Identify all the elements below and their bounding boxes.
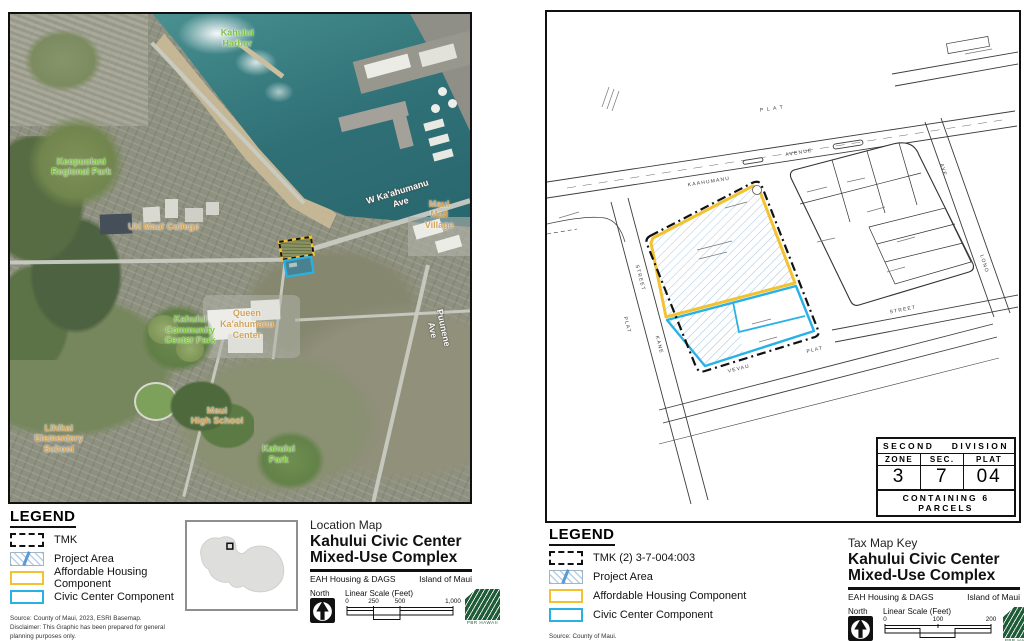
map-label: Lihikai Elementary School	[34, 423, 83, 455]
legend-item: Affordable Housing Component	[549, 588, 839, 603]
project-title: Kahului Civic Center Mixed-Use Complex	[848, 552, 1020, 584]
left-scale-bar: Linear Scale (Feet) 02505001,000	[345, 589, 455, 622]
division-col-value: 7	[921, 466, 964, 489]
north-arrow-icon	[848, 616, 873, 641]
legend-title: LEGEND	[549, 526, 615, 546]
legend-swatch-tmk	[10, 533, 44, 547]
legend-item-label: Project Area	[593, 571, 653, 583]
firm-logo: PBR HAWAII	[1003, 607, 1024, 641]
map-label: Kahului Park	[262, 444, 295, 465]
maui-island-silhouette	[187, 522, 296, 609]
map-label: Maui Mall Village	[424, 199, 455, 231]
map-label: UH Maui College	[128, 222, 199, 233]
title-rule	[848, 587, 1020, 590]
legend-swatch-affordable	[549, 589, 583, 603]
pbr-hawaii-logo-icon	[1003, 607, 1024, 638]
legend-item: Project Area	[10, 551, 190, 566]
north-arrow-icon	[310, 598, 335, 623]
island-inset-map	[185, 520, 298, 611]
legend-item-label: TMK (2) 3-7-004:003	[593, 552, 695, 564]
scale-bar-graphic	[345, 606, 455, 620]
firm-logo: PBR HAWAII	[465, 589, 500, 625]
division-title: SECOND DIVISION	[878, 439, 1014, 454]
legend-item-label: Civic Center Component	[593, 609, 713, 621]
scale-bar-graphic	[883, 624, 993, 638]
north-indicator: North	[310, 589, 335, 625]
legend-swatch-project	[549, 570, 583, 584]
island-label: Island of Maui	[419, 574, 472, 584]
legend-item-label: Civic Center Component	[54, 591, 174, 603]
client-label: EAH Housing & DAGS	[310, 574, 396, 584]
map-type-label: Location Map	[310, 518, 472, 532]
map-label: Queen Ka'ahumanu Center	[220, 308, 274, 340]
scale-tick: 100	[933, 616, 944, 623]
legend-swatch-project	[10, 552, 44, 566]
scale-tick: 0	[345, 598, 349, 605]
legend-swatch-affordable	[10, 571, 44, 585]
right-legend: LEGEND TMK (2) 3-7-004:003Project AreaAf…	[549, 526, 839, 641]
map-label: Keopuolani Regional Park	[51, 156, 111, 177]
division-col-header: ZONE	[878, 454, 921, 466]
island-label: Island of Maui	[967, 592, 1020, 602]
map-type-label: Tax Map Key	[848, 536, 1020, 550]
planning-exhibit-page: Kahului HarborKeopuolani Regional ParkUH…	[0, 0, 1024, 641]
college-buildings	[134, 192, 226, 241]
source-note: Source: County of Maui, 2023, ESRI Basem…	[10, 614, 190, 623]
legend-item: Project Area	[549, 569, 839, 584]
client-label: EAH Housing & DAGS	[848, 592, 934, 602]
legend-swatch-civic	[549, 608, 583, 622]
division-col-header: SEC.	[921, 454, 964, 466]
right-source-disclaimer: Source: County of Maui. Disclaimer: This…	[549, 632, 839, 641]
division-headers: ZONESEC.PLAT	[878, 454, 1014, 466]
legend-item: Affordable Housing Component	[10, 570, 190, 585]
project-title: Kahului Civic Center Mixed-Use Complex	[310, 534, 472, 566]
legend-item-label: TMK	[54, 534, 77, 546]
tax-map: P L A TKAAHUMANUAVENUESTREETPLATKANEAVEL…	[545, 10, 1021, 523]
park-fields	[24, 29, 102, 92]
satellite-location-map: Kahului HarborKeopuolani Regional ParkUH…	[8, 12, 472, 504]
division-col-value: 3	[878, 466, 921, 489]
north-indicator: North	[848, 607, 873, 641]
map-label: Kahului Harbor	[221, 27, 254, 48]
legend-item: TMK	[10, 532, 190, 547]
right-title-block: Tax Map Key Kahului Civic Center Mixed-U…	[848, 536, 1020, 641]
division-values: 3704	[878, 466, 1014, 489]
fuel-tank	[438, 87, 447, 96]
scale-tick: 1,000	[445, 598, 461, 605]
left-title-block: Location Map Kahului Civic Center Mixed-…	[310, 518, 472, 625]
source-note: Source: County of Maui.	[549, 632, 839, 641]
scale-tick: 500	[395, 598, 406, 605]
division-col-header: PLAT	[964, 454, 1014, 466]
scale-tick: 250	[368, 598, 379, 605]
map-label: Puunene Ave	[424, 308, 453, 350]
legend-item-label: Affordable Housing Component	[54, 566, 190, 590]
left-source-disclaimer: Source: County of Maui, 2023, ESRI Basem…	[10, 614, 190, 641]
map-label: Kahului Community Center Park	[165, 314, 216, 346]
legend-item-label: Affordable Housing Component	[593, 590, 746, 602]
project-area-marker	[277, 234, 321, 281]
legend-item: TMK (2) 3-7-004:003	[549, 550, 839, 565]
scale-tick-labels: 0100200	[883, 616, 993, 624]
surf-foam	[258, 77, 299, 106]
legend-swatch-tmk	[549, 551, 583, 565]
parcel-count: CONTAINING 6 PARCELS	[878, 489, 1014, 515]
division-col-value: 04	[964, 466, 1014, 489]
puunene-ave-road	[371, 265, 430, 504]
title-rule	[310, 569, 472, 572]
legend-item: Civic Center Component	[549, 607, 839, 622]
legend-title: LEGEND	[10, 508, 76, 528]
pbr-hawaii-logo-icon	[465, 589, 500, 620]
legend-item-label: Project Area	[54, 553, 114, 565]
left-legend: LEGEND TMKProject AreaAffordable Housing…	[10, 508, 190, 641]
right-scale-bar: Linear Scale (Feet) 0100200	[883, 607, 993, 640]
surf-foam	[226, 43, 286, 82]
legend-swatch-civic	[10, 590, 44, 604]
scale-tick: 200	[986, 616, 997, 623]
legend-item: Civic Center Component	[10, 589, 190, 604]
map-label: Maui High School	[191, 405, 244, 426]
scale-tick-labels: 02505001,000	[345, 598, 455, 606]
scale-tick: 0	[883, 616, 887, 623]
disclaimer-note: Disclaimer: This Graphic has been prepar…	[10, 623, 190, 641]
tax-map-division-box: SECOND DIVISION ZONESEC.PLAT 3704 CONTAI…	[876, 437, 1016, 517]
